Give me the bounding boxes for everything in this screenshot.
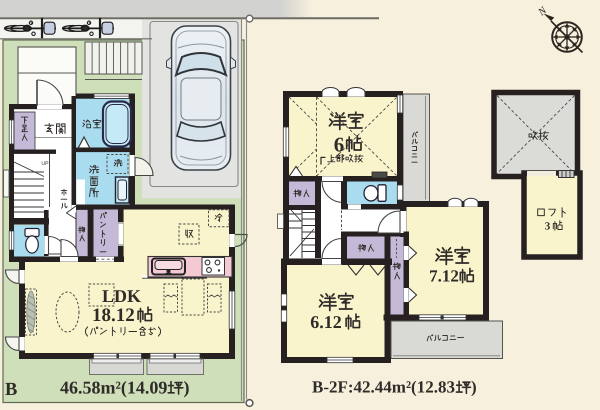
svg-text:3: 3 (545, 221, 551, 233)
svg-text:): ) (184, 378, 190, 398)
svg-text:): ) (471, 378, 477, 397)
svg-text:B: B (5, 380, 17, 400)
svg-text:46.58m²(14.09: 46.58m²(14.09 (60, 378, 167, 398)
svg-text:6: 6 (334, 133, 345, 157)
svg-text:LDK: LDK (102, 286, 141, 306)
svg-text:18.12: 18.12 (92, 305, 135, 326)
svg-text:7.12: 7.12 (429, 267, 459, 286)
svg-text:B-2F:42.44m²(12.83: B-2F:42.44m²(12.83 (312, 378, 455, 397)
svg-text:6.12: 6.12 (310, 312, 342, 332)
svg-text:UP: UP (41, 161, 49, 167)
